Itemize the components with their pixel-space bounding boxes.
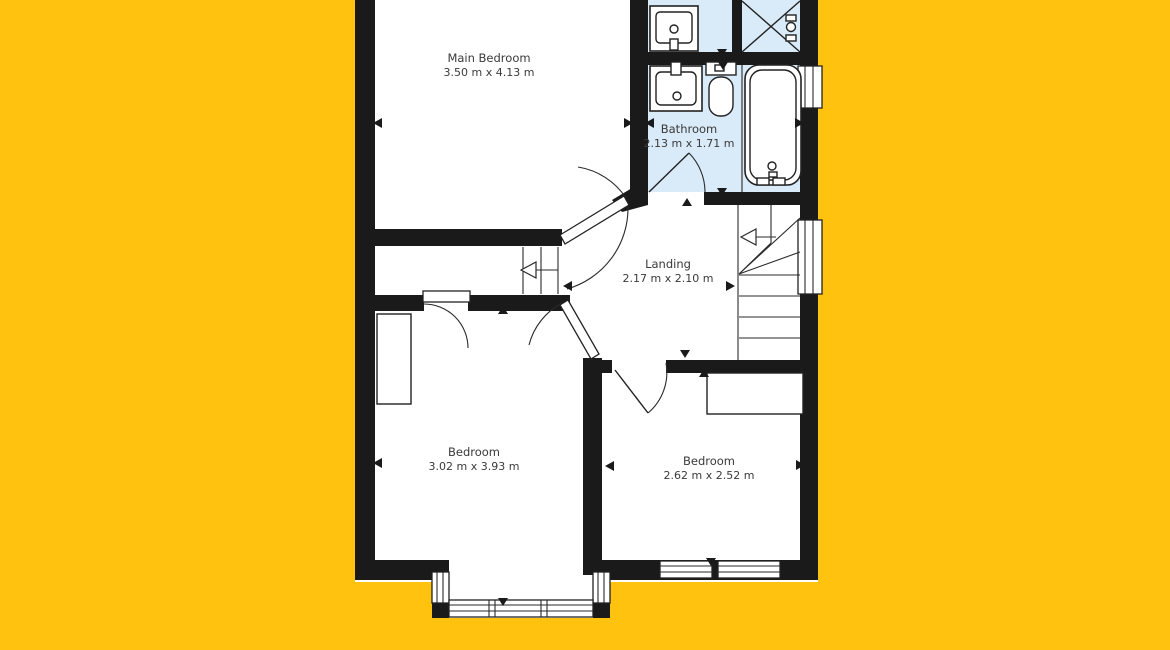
wardrobe-bedroom-right bbox=[707, 373, 803, 414]
corridor-wall-left bbox=[355, 295, 424, 311]
floor-plan-svg: Main Bedroom 3.50 m x 4.13 m Bathroom 2.… bbox=[0, 0, 1170, 650]
window-bedroom-right-2 bbox=[718, 561, 780, 578]
ensuite-divider-wall bbox=[732, 0, 742, 53]
corridor-wall-right bbox=[468, 295, 570, 311]
bathtub-icon bbox=[745, 65, 801, 185]
room-dimensions: 3.02 m x 3.93 m bbox=[429, 460, 520, 473]
toilet-icon bbox=[706, 62, 736, 116]
bathroom-block-left-wall bbox=[630, 0, 648, 205]
bay-window bbox=[432, 572, 610, 617]
room-name: Bathroom bbox=[661, 122, 717, 136]
room-dimensions: 2.13 m x 1.71 m bbox=[644, 137, 735, 150]
bedroom-divider-wall bbox=[583, 358, 602, 580]
landing-bottom-wall-left bbox=[602, 360, 612, 373]
room-name: Main Bedroom bbox=[447, 51, 530, 65]
room-dimensions: 3.50 m x 4.13 m bbox=[444, 66, 535, 79]
bay-corner-right bbox=[593, 602, 610, 618]
room-name: Bedroom bbox=[683, 454, 735, 468]
room-name: Bedroom bbox=[448, 445, 500, 459]
landing-bottom-wall-right bbox=[666, 360, 818, 373]
floor-plan-image: Main Bedroom 3.50 m x 4.13 m Bathroom 2.… bbox=[0, 0, 1170, 650]
ensuite-sink-icon bbox=[650, 6, 698, 51]
window-stairwell-right bbox=[798, 220, 822, 294]
room-name: Landing bbox=[645, 257, 691, 271]
left-wall bbox=[355, 0, 375, 580]
bay-corner-left bbox=[432, 602, 449, 618]
room-dimensions: 2.17 m x 2.10 m bbox=[623, 272, 714, 285]
room-dimensions: 2.62 m x 2.52 m bbox=[664, 469, 755, 482]
bathroom-sink-icon bbox=[650, 62, 702, 111]
window-bedroom-right-1 bbox=[660, 561, 712, 578]
wardrobe-bedroom-left bbox=[377, 314, 411, 404]
